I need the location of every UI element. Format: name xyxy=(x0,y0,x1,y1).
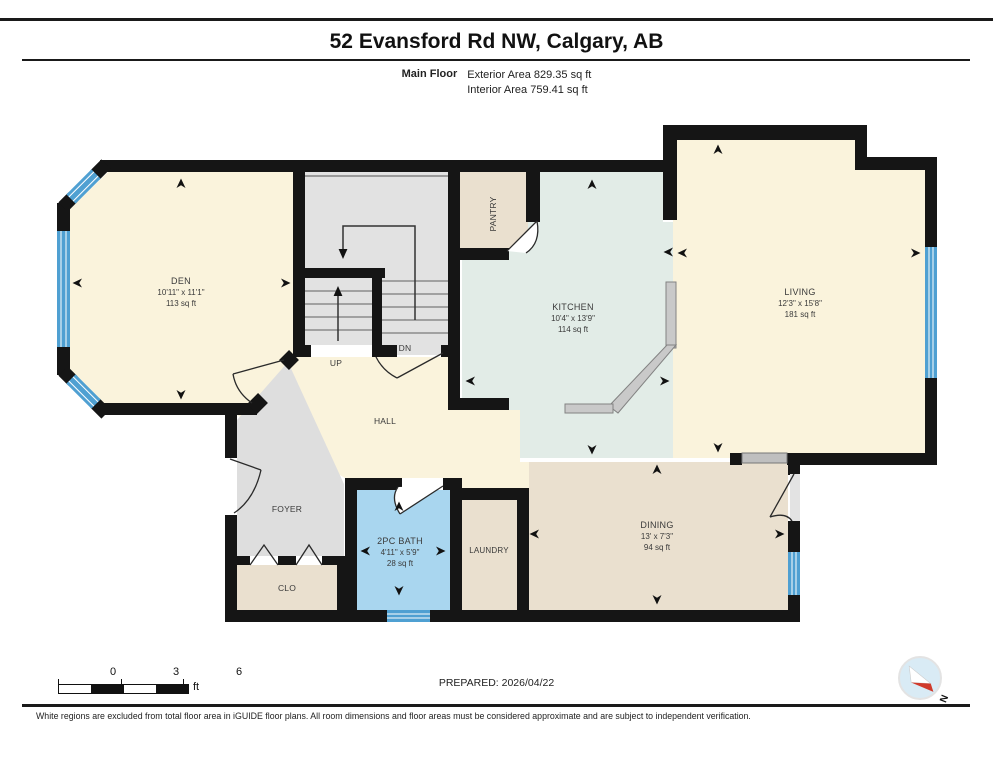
bath-dims: 4'11" x 5'9" xyxy=(381,548,420,557)
floor-label: Main Floor xyxy=(402,68,458,98)
stairs-down-label: DN xyxy=(399,343,412,353)
prepared-date: PREPARED: 2026/04/22 xyxy=(0,677,993,689)
bath-window xyxy=(387,610,430,622)
stair-landing xyxy=(305,172,448,268)
kitchen-dims: 10'4" x 13'9" xyxy=(551,314,595,323)
dining-dims: 13' x 7'3" xyxy=(641,532,673,541)
exterior-area: Exterior Area 829.35 sq ft xyxy=(467,68,591,83)
bath-area: 28 sq ft xyxy=(387,559,414,568)
closet-label: CLO xyxy=(278,583,296,593)
room-laundry xyxy=(462,500,517,610)
top-border-line xyxy=(0,18,993,21)
dining-window xyxy=(788,552,800,595)
kitchen-area: 114 sq ft xyxy=(558,325,589,334)
living-label: LIVING xyxy=(784,287,815,297)
floorplan-page: 52 Evansford Rd NW, Calgary, AB Main Flo… xyxy=(0,0,993,768)
hall-label: HALL xyxy=(374,416,396,426)
kitchen-label: KITCHEN xyxy=(552,302,594,312)
dining-label: DINING xyxy=(640,520,673,530)
page-title: 52 Evansford Rd NW, Calgary, AB xyxy=(0,30,993,54)
compass-north-label: N xyxy=(937,693,950,704)
floor-summary: Main Floor Exterior Area 829.35 sq ft In… xyxy=(0,68,993,98)
living-step xyxy=(742,453,787,463)
stairs-up-label: UP xyxy=(330,358,342,368)
footer-divider xyxy=(22,704,970,707)
den-area: 113 sq ft xyxy=(166,299,197,308)
living-dims: 12'3" x 15'8" xyxy=(778,299,822,308)
pantry-label: PANTRY xyxy=(488,196,498,231)
disclaimer-text: White regions are excluded from total fl… xyxy=(36,711,751,721)
interior-area: Interior Area 759.41 sq ft xyxy=(467,83,591,98)
dining-area: 94 sq ft xyxy=(644,543,671,552)
title-divider xyxy=(22,59,970,61)
bath-label: 2PC BATH xyxy=(377,536,423,546)
den-dims: 10'11" x 11'1" xyxy=(157,288,204,297)
den-label: DEN xyxy=(171,276,191,286)
foyer-label: FOYER xyxy=(272,504,302,514)
living-window xyxy=(925,247,937,378)
floor-plan: DEN 10'11" x 11'1" 113 sq ft KITCHEN 10'… xyxy=(0,110,993,640)
living-area: 181 sq ft xyxy=(785,310,816,319)
laundry-label: LAUNDRY xyxy=(469,546,509,555)
